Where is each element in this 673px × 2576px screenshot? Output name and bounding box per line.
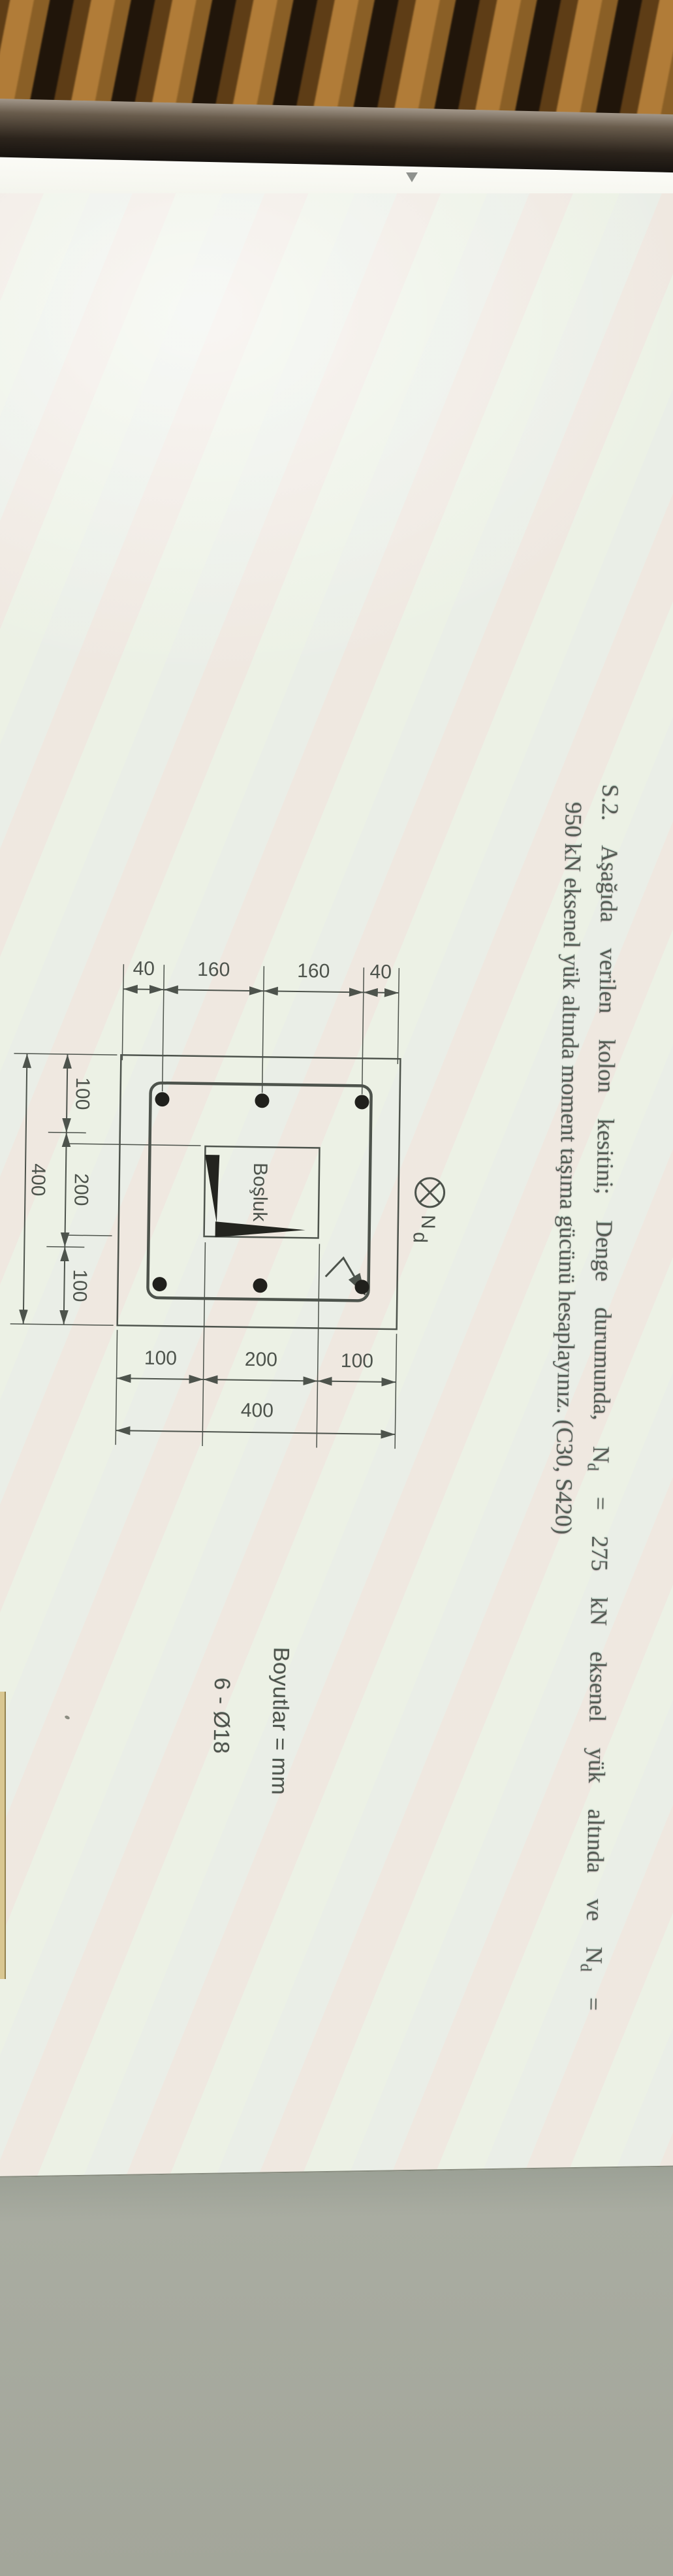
dim-label-right-0: 100: [341, 1350, 374, 1372]
load-symbol-label: N: [417, 1215, 439, 1229]
left-dim-extension-lines: [122, 964, 399, 1095]
dim-label-left-3: 40: [133, 958, 155, 979]
dim-label-right-2: 100: [144, 1347, 178, 1370]
dim-label-right-total: 400: [241, 1400, 274, 1422]
load-symbol-sub: d: [409, 1232, 430, 1243]
adjacent-page-edge: [0, 1692, 6, 1979]
rotated-document: S.2. Aşağıda verilen kolon kesitini; Den…: [0, 182, 673, 2170]
dim-label-right-1: 200: [245, 1349, 278, 1371]
column-section-figure: Boşluk N d 40 160 160 40 100 200 100 400…: [0, 926, 452, 1521]
rebar-dot: [253, 1278, 267, 1293]
photo-of-screen: S.2. Aşağıda verilen kolon kesitini; Den…: [0, 0, 673, 2576]
dim-label-bottom-1: 200: [70, 1173, 92, 1206]
rebar-dot: [155, 1092, 169, 1106]
app-background: [0, 2165, 673, 2576]
left-dim-line: [123, 989, 399, 993]
dim-label-bottom-0: 100: [71, 1077, 93, 1110]
rebar-dot: [354, 1095, 369, 1109]
dim-label-left-2: 160: [197, 959, 230, 981]
dim-label-left-0: 40: [369, 961, 392, 983]
dim-label-bottom-2: 100: [69, 1269, 91, 1302]
units-note: Boyutlar = mm: [266, 1647, 294, 1795]
chevron-down-icon[interactable]: [406, 172, 418, 182]
dim-label-bottom-total: 400: [27, 1163, 49, 1197]
rebar-note: 6 - Ø18: [208, 1677, 236, 1754]
rebar-dot: [255, 1093, 269, 1108]
void-label: Boşluk: [249, 1163, 271, 1222]
dim-label-left-1: 160: [297, 960, 330, 982]
rebar-dot: [152, 1277, 166, 1291]
axial-load-symbol: [415, 1178, 445, 1208]
